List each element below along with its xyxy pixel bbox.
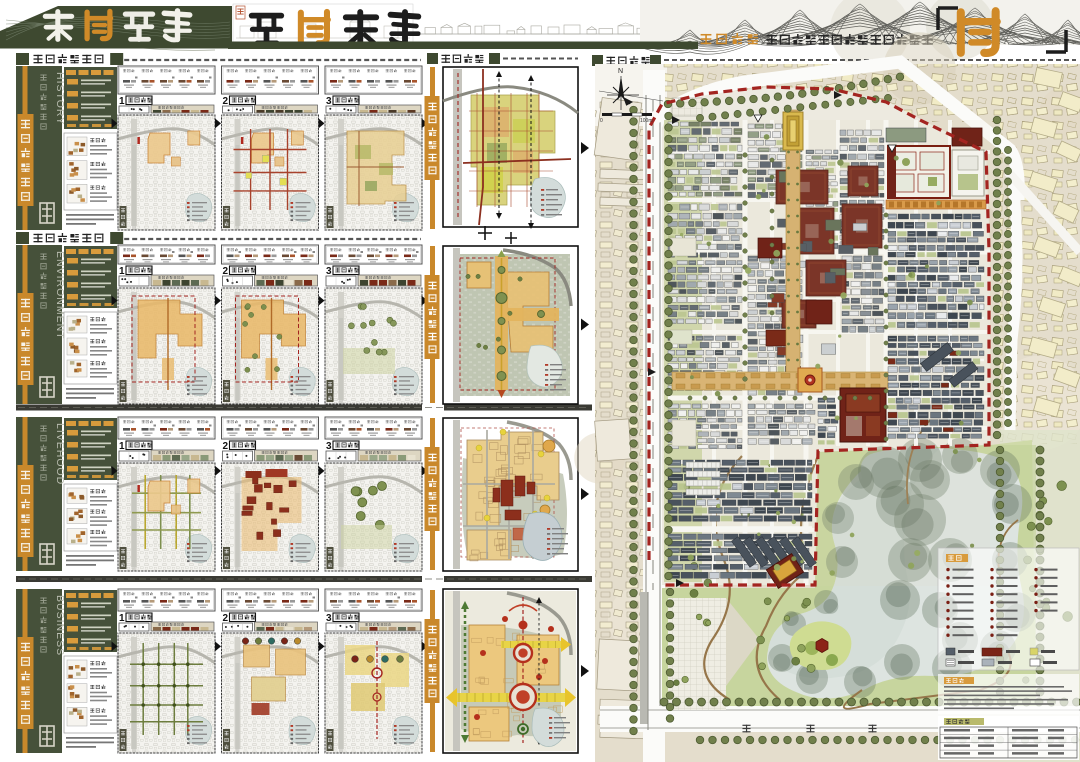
svg-text:2: 2 [223,613,229,624]
svg-text:3: 3 [326,613,332,624]
svg-text:N: N [618,68,623,75]
svg-text:3: 3 [326,441,332,452]
svg-text:2: 2 [223,441,229,452]
svg-text:2: 2 [223,96,229,107]
svg-text:3: 3 [326,96,332,107]
svg-text:1: 1 [119,441,125,452]
svg-text:100m: 100m [640,118,653,124]
svg-text:0: 0 [600,118,603,124]
svg-text:1: 1 [119,266,125,277]
svg-text:3: 3 [326,266,332,277]
svg-text:2: 2 [223,266,229,277]
svg-text:1: 1 [119,613,125,624]
svg-text:1: 1 [119,96,125,107]
